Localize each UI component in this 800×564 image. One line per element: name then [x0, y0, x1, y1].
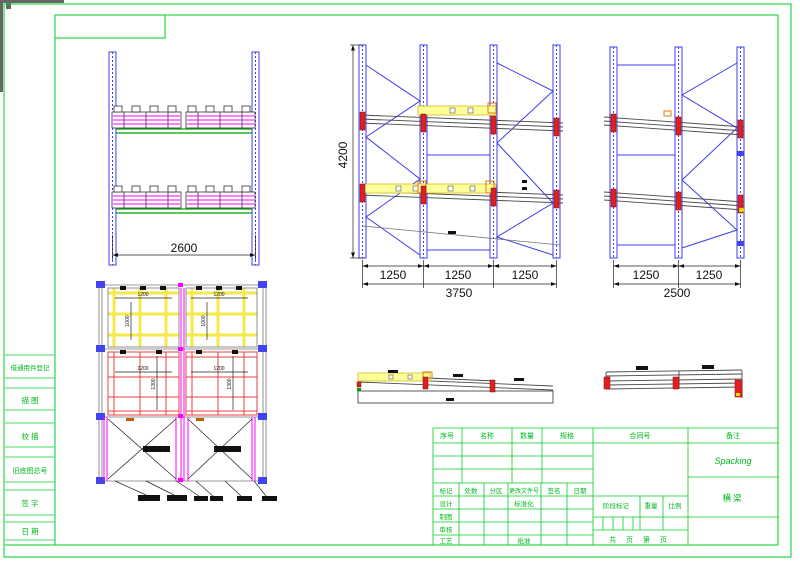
weight-label: 重量 [645, 502, 659, 510]
dim-text-bay1: 1250 [380, 268, 407, 282]
plan-frame [96, 281, 267, 484]
dim-text-bay3: 1250 [512, 268, 539, 282]
col-spec: 规格 [560, 431, 574, 440]
plan-dim-top-width: 1200 [137, 292, 148, 298]
strip-label-date: 日 期 [21, 527, 38, 536]
plan-dim-mid-width: 1200 [137, 366, 148, 372]
bracing [617, 63, 744, 248]
rev-mark: 标记 [440, 486, 454, 495]
strip-label-old-drawing-no: 旧底图总号 [13, 466, 48, 475]
pallet [186, 186, 255, 208]
rev-docno: 更改文件号 [509, 487, 539, 495]
strip-label-tracing: 描 图 [21, 395, 38, 405]
beam-detail-right [604, 365, 742, 398]
plan-dim-mid-depth: 1300 [151, 378, 157, 389]
bottom-dimensions: 1250 1250 1250 3750 [363, 260, 557, 300]
col-contract: 合同号 [630, 431, 651, 440]
stage-label: 阶段标记 [603, 501, 630, 510]
margin-strip: 借通用件登记 描 图 校 描 旧底图总号 签 字 日 期 [5, 355, 55, 540]
beam-level-1 [604, 111, 744, 138]
rev-date: 日期 [574, 487, 588, 495]
diagonal-bracing [366, 63, 553, 255]
plan-pallet-red-right: 1200 1300 [186, 350, 257, 415]
upright-columns [610, 47, 744, 258]
plan-view: 1200 1000 1200 1000 1200 1300 [96, 281, 277, 501]
drawing-canvas: 借通用件登记 描 图 校 描 旧底图总号 签 字 日 期 [0, 0, 800, 564]
title-block: 序号 名称 数量 规格 合同号 备注 标记 处数 分区 更改文件号 签名 日期 … [433, 428, 778, 545]
dim-text-bay2: 1250 [445, 268, 472, 282]
plan-pallet-yellow-right: 1200 1000 [186, 286, 257, 347]
beam-level-2 [360, 180, 563, 208]
col-qty: 数量 [520, 431, 534, 440]
upright-columns [109, 52, 259, 265]
dim-text-3750: 3750 [446, 286, 473, 300]
role-draft: 制图 [440, 512, 453, 521]
dim-text-2500: 2500 [664, 286, 691, 300]
pages-label: 共 页 第 页 [609, 535, 671, 544]
approve-label: 批准 [518, 536, 532, 545]
role-process: 工艺 [440, 537, 454, 545]
beam-level-1 [360, 103, 563, 136]
plan-pallet-yellow-left: 1200 1000 [108, 286, 179, 347]
cad-drawing-sheet: 借通用件登记 描 图 校 描 旧底图总号 签 字 日 期 [0, 0, 800, 564]
grid-reference-box [55, 15, 165, 38]
dim-text-2600: 2600 [171, 241, 198, 255]
title-block-grid [433, 428, 778, 545]
pallet [112, 106, 181, 128]
app-window-corner [0, 0, 64, 92]
rev-zone: 分区 [490, 486, 504, 495]
strip-label-reuse: 借通用件登记 [11, 363, 51, 372]
dim-text-bay1: 1250 [633, 268, 660, 282]
drawing-title: 横梁 [722, 493, 743, 503]
role-review: 审核 [440, 525, 454, 534]
side-elevation-view: 4200 1250 1250 1250 3750 [336, 45, 563, 300]
bottom-dimensions: 1250 1250 2500 [614, 260, 741, 300]
project-name: Spacking [714, 456, 751, 466]
dim-text-4200: 4200 [336, 141, 350, 168]
strip-label-check-tracing: 校 描 [21, 431, 39, 441]
standardize-label: 标准化 [514, 499, 534, 508]
beam-level-2 [604, 189, 744, 213]
plan-dim-top-width: 1200 [213, 292, 224, 298]
strip-label-signature: 签 字 [21, 498, 38, 508]
plan-dim-mid-width: 1200 [213, 366, 224, 372]
beam-level-1 [112, 106, 255, 133]
end-elevation-view: 1250 1250 2500 [604, 47, 744, 300]
plan-leaders [115, 481, 277, 501]
rev-count: 处数 [465, 486, 479, 495]
pallet [112, 186, 181, 208]
dimension-2600: 2600 [113, 235, 256, 260]
beam-level-2 [112, 186, 255, 213]
plan-dim-mid-depth: 1300 [227, 378, 233, 389]
upright-columns [359, 45, 560, 258]
beam-detail-left [357, 370, 553, 403]
scale-label: 比例 [669, 501, 682, 510]
col-seq: 序号 [440, 431, 454, 440]
col-remarks: 备注 [726, 431, 740, 440]
plan-dim-top-depth: 1000 [201, 315, 207, 326]
plan-pallet-red-left: 1200 1300 [108, 350, 179, 415]
role-design: 设计 [440, 499, 454, 508]
plan-dim-top-depth: 1000 [125, 315, 131, 326]
dim-text-bay2: 1250 [696, 268, 723, 282]
plan-bottom-section [104, 417, 255, 481]
rev-sign: 签名 [548, 486, 561, 495]
front-elevation-view: 2600 [109, 52, 259, 265]
pallet [186, 106, 255, 128]
col-name: 名称 [480, 431, 494, 440]
